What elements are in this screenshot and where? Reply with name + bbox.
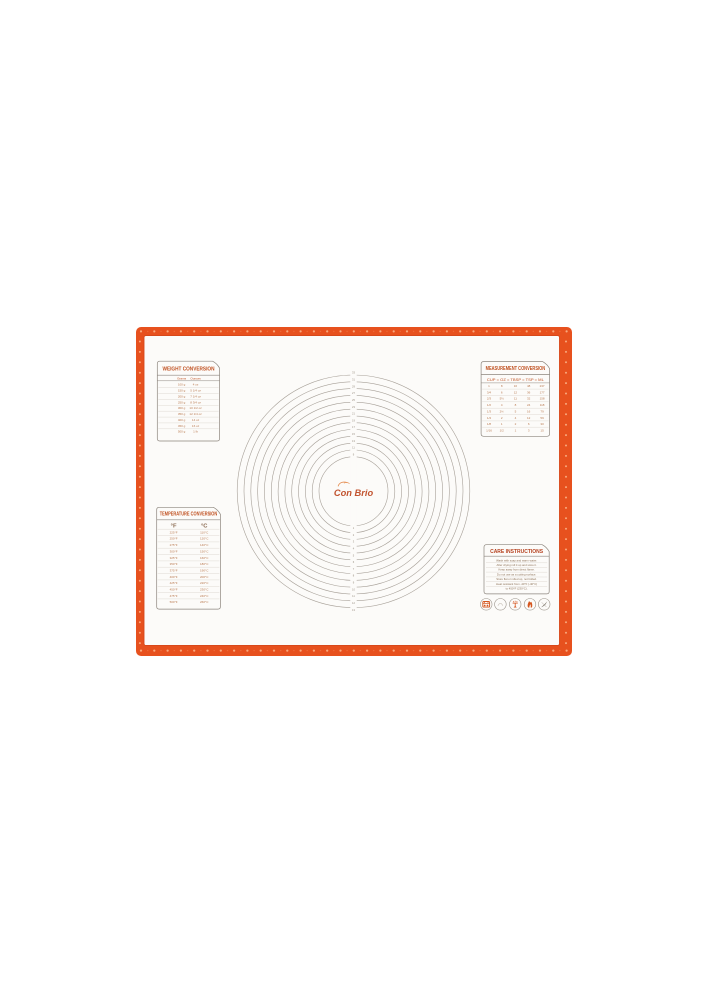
svg-text:275°F: 275°F	[170, 543, 178, 547]
svg-text:8 3/4 oz: 8 3/4 oz	[190, 400, 201, 404]
svg-text:160°C: 160°C	[200, 556, 209, 560]
svg-text:100 g: 100 g	[178, 383, 186, 387]
svg-text:450 g: 450 g	[178, 424, 186, 428]
svg-text:After drying roll it up and st: After drying roll it up and store it.	[496, 563, 536, 567]
svg-text:2¾: 2¾	[500, 409, 505, 413]
svg-text:230°C: 230°C	[200, 588, 209, 592]
svg-text:177: 177	[540, 390, 545, 394]
svg-text:150°C: 150°C	[200, 549, 209, 553]
svg-text:4 oz: 4 oz	[193, 383, 199, 387]
svg-text:375°F: 375°F	[170, 568, 178, 572]
svg-text:1 lb: 1 lb	[193, 430, 198, 434]
svg-text:250°F: 250°F	[170, 537, 178, 541]
svg-text:475°F: 475°F	[170, 594, 178, 598]
svg-text:400°F: 400°F	[170, 575, 178, 579]
svg-text:Wash with soap and warm water.: Wash with soap and warm water.	[496, 558, 537, 562]
svg-text:118: 118	[540, 403, 545, 407]
svg-text:5 1/4 oz: 5 1/4 oz	[190, 389, 201, 393]
svg-text:°F: °F	[171, 523, 177, 529]
svg-text:30: 30	[540, 422, 544, 426]
svg-text:1/4: 1/4	[487, 416, 492, 420]
svg-text:24: 24	[527, 403, 531, 407]
svg-text:Store flat or rolled up, not f: Store flat or rolled up, not folded.	[496, 577, 537, 581]
svg-text:240°C: 240°C	[200, 594, 209, 598]
svg-text:Do not use as a cutting surfac: Do not use as a cutting surface.	[497, 573, 537, 577]
svg-text:200 g: 200 g	[178, 394, 186, 398]
svg-text:120°C: 120°C	[200, 537, 209, 541]
svg-text:2/3: 2/3	[487, 397, 492, 401]
svg-text:Grams: Grams	[177, 376, 187, 380]
svg-text:to 450°F (230°C).: to 450°F (230°C).	[506, 587, 528, 591]
svg-text:250 g: 250 g	[178, 400, 186, 404]
svg-text:1/3: 1/3	[487, 409, 492, 413]
svg-text:16: 16	[527, 409, 531, 413]
svg-text:300°F: 300°F	[170, 549, 178, 553]
svg-text:3/4: 3/4	[487, 390, 492, 394]
svg-text:79: 79	[540, 409, 544, 413]
svg-text:1/2: 1/2	[500, 428, 505, 432]
svg-text:14 oz: 14 oz	[192, 418, 200, 422]
svg-text:36: 36	[527, 390, 531, 394]
svg-text:TEMPERATURE CONVERSION: TEMPERATURE CONVERSION	[160, 511, 218, 517]
svg-text:150 g: 150 g	[178, 389, 186, 393]
svg-text:260°C: 260°C	[200, 600, 209, 604]
svg-text:Keep away from direct flame.: Keep away from direct flame.	[498, 568, 534, 572]
svg-text:325°F: 325°F	[170, 556, 178, 560]
svg-text:5½: 5½	[500, 397, 505, 401]
svg-text:11: 11	[514, 397, 517, 401]
svg-text:32: 32	[527, 397, 531, 401]
svg-text:MEASUREMENT CONVERSION: MEASUREMENT CONVERSION	[486, 366, 546, 372]
svg-text:500°F: 500°F	[170, 600, 178, 604]
svg-text:180°C: 180°C	[200, 562, 209, 566]
svg-text:°C: °C	[201, 523, 208, 529]
svg-text:400 g: 400 g	[178, 418, 186, 422]
svg-text:12 1/4 oz: 12 1/4 oz	[189, 412, 202, 416]
svg-text:15: 15	[540, 428, 544, 432]
svg-text:425°F: 425°F	[170, 581, 178, 585]
svg-text:500 g: 500 g	[178, 430, 186, 434]
svg-text:WEIGHT CONVERSION: WEIGHT CONVERSION	[163, 366, 215, 372]
svg-text:350 g: 350 g	[178, 412, 186, 416]
svg-text:350°F: 350°F	[170, 562, 178, 566]
svg-text:10 1/2 oz: 10 1/2 oz	[189, 406, 202, 410]
svg-text:CUP = OZ = TBSP = TSP = ML: CUP = OZ = TBSP = TSP = ML	[487, 378, 544, 382]
svg-text:110°C: 110°C	[200, 530, 209, 534]
svg-text:220°C: 220°C	[200, 581, 209, 585]
svg-text:Ounces: Ounces	[190, 376, 201, 380]
svg-text:237: 237	[540, 384, 545, 388]
svg-text:225°F: 225°F	[170, 530, 178, 534]
svg-text:16 oz: 16 oz	[192, 424, 200, 428]
svg-text:200°C: 200°C	[200, 575, 209, 579]
svg-text:190°C: 190°C	[200, 568, 209, 572]
svg-text:158: 158	[540, 397, 545, 401]
svg-text:12: 12	[514, 390, 518, 394]
svg-text:1/16: 1/16	[486, 428, 492, 432]
svg-text:1/8: 1/8	[487, 422, 492, 426]
svg-text:48: 48	[527, 384, 531, 388]
svg-text:Con Brio: Con Brio	[334, 488, 374, 498]
svg-text:16: 16	[514, 384, 518, 388]
svg-text:12: 12	[527, 416, 531, 420]
svg-text:CARE INSTRUCTIONS: CARE INSTRUCTIONS	[490, 549, 544, 555]
svg-text:300 g: 300 g	[178, 406, 186, 410]
svg-text:1/2: 1/2	[487, 403, 492, 407]
svg-text:Heat resistant from -40°F (-40: Heat resistant from -40°F (-40°C)	[496, 582, 537, 586]
svg-text:140°C: 140°C	[200, 543, 209, 547]
svg-text:7 1/4 oz: 7 1/4 oz	[190, 394, 201, 398]
svg-text:59: 59	[540, 416, 544, 420]
svg-text:450°F: 450°F	[170, 588, 178, 592]
